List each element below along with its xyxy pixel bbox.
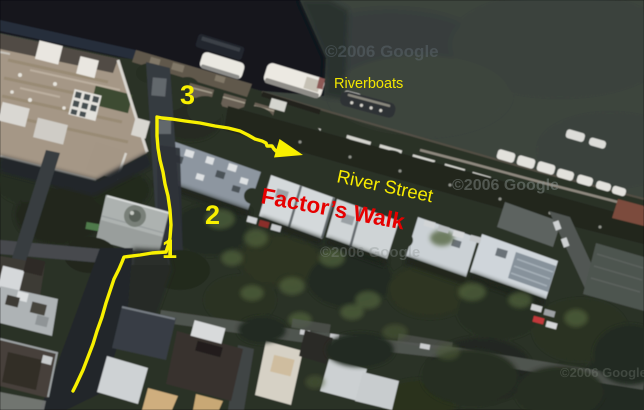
svg-text:Riverboats: Riverboats (334, 76, 403, 92)
svg-text:©2006 Google: ©2006 Google (560, 365, 644, 380)
svg-text:1: 1 (162, 234, 177, 264)
svg-text:3: 3 (180, 80, 195, 110)
svg-text:©2006 Google: ©2006 Google (320, 244, 420, 261)
svg-text:2: 2 (205, 200, 220, 230)
svg-text:©2006 Google: ©2006 Google (452, 177, 559, 194)
svg-text:©2006 Google: ©2006 Google (325, 42, 439, 61)
